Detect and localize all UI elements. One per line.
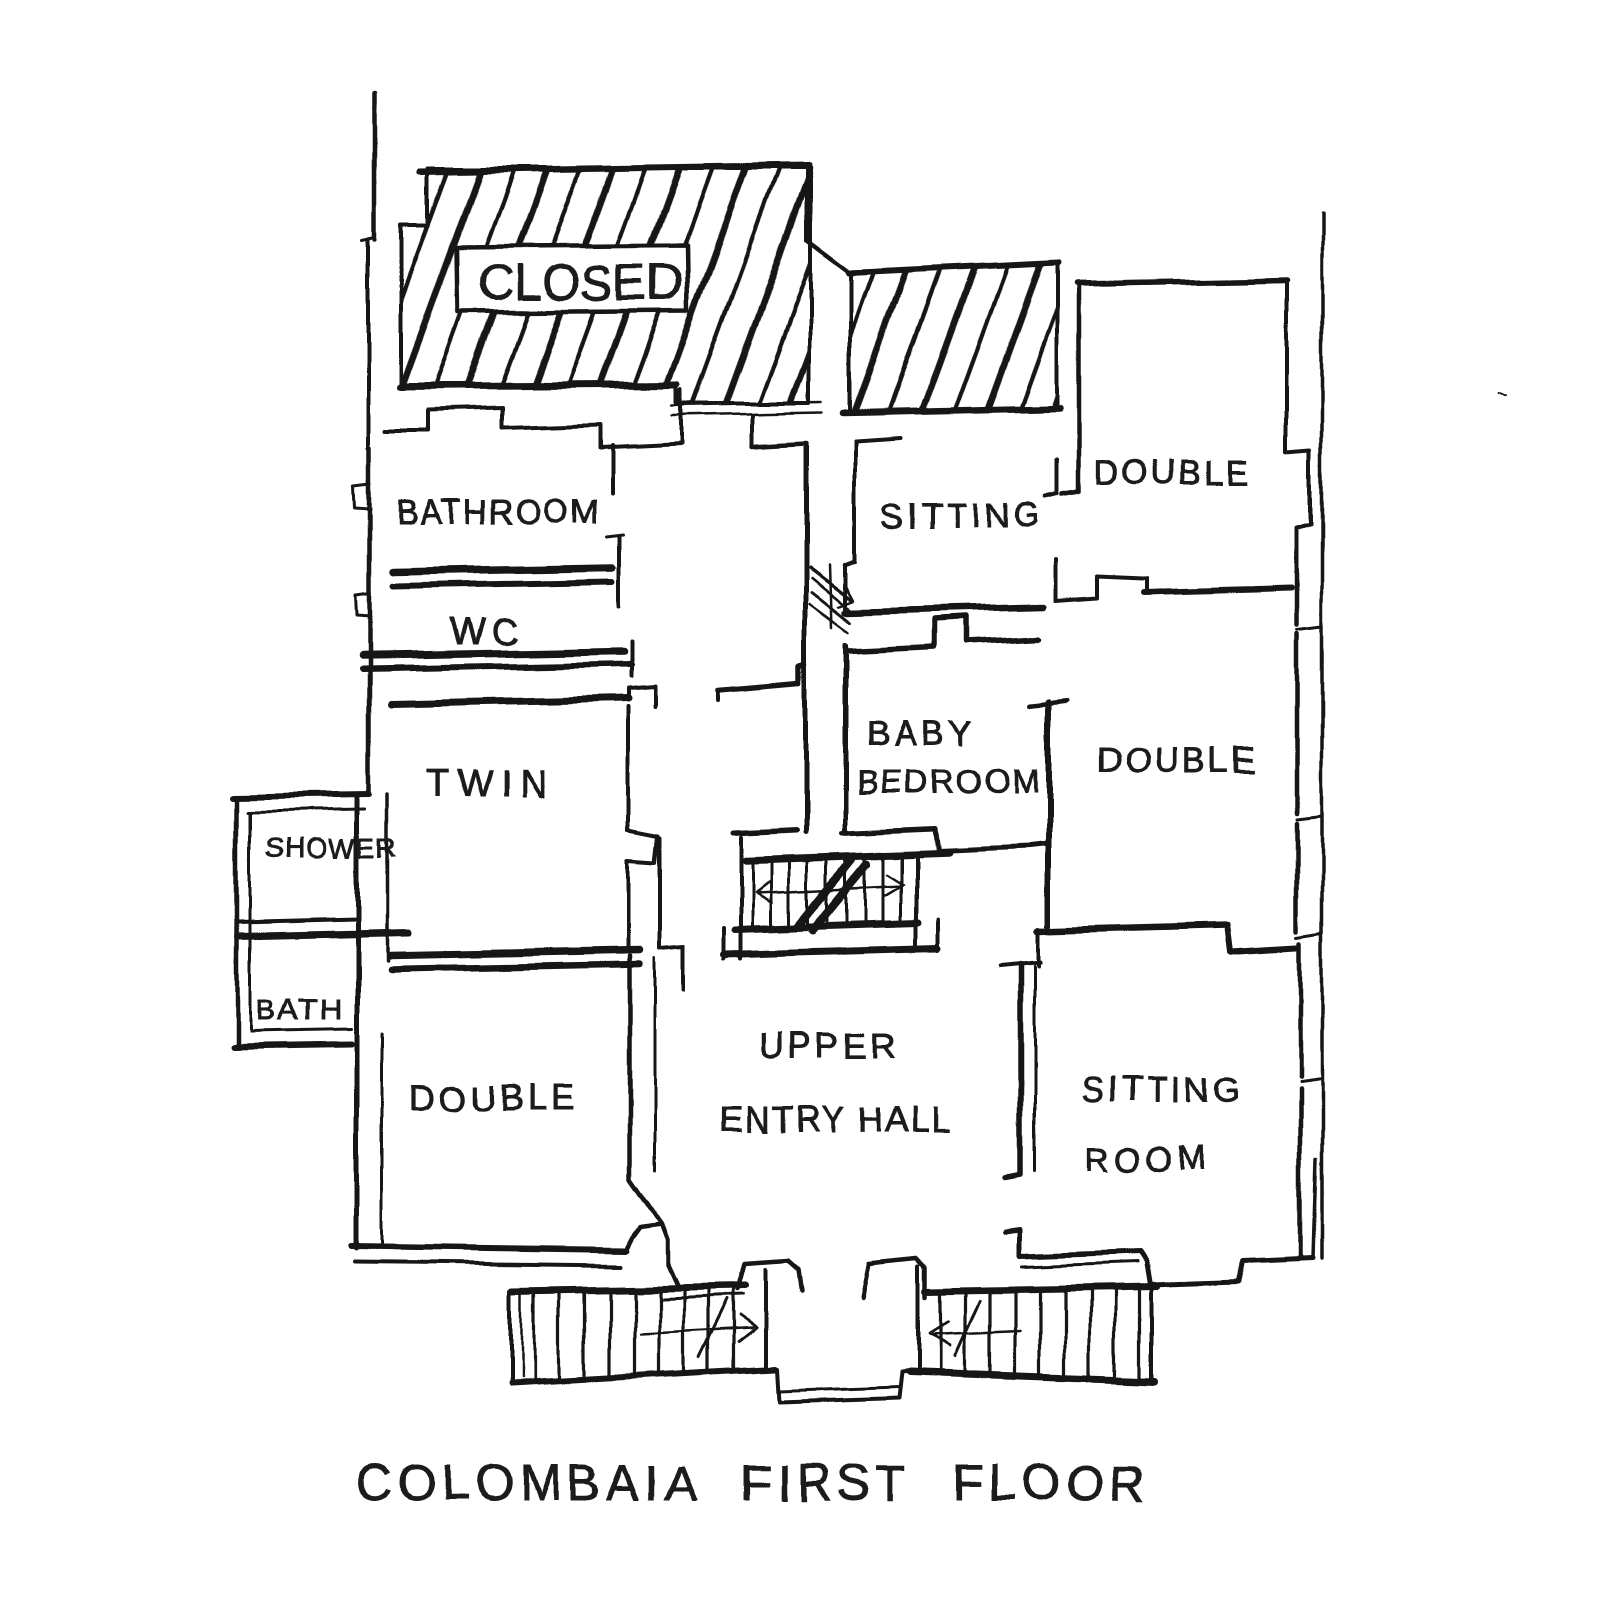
svg-text:SITTING: SITTING — [881, 497, 1043, 535]
svg-text:BABY: BABY — [865, 714, 978, 753]
svg-text:DOUBLE: DOUBLE — [409, 1079, 577, 1118]
svg-text:BATH: BATH — [256, 993, 344, 1028]
svg-text:UPPER: UPPER — [758, 1027, 899, 1066]
svg-text:TWIN: TWIN — [426, 763, 555, 805]
svg-text:BEDROOM: BEDROOM — [856, 764, 1041, 801]
svg-text:COLOMBAIA FIRST FLOOR: COLOMBAIA FIRST FLOOR — [356, 1455, 1152, 1511]
svg-text:WC: WC — [452, 611, 524, 652]
svg-text:CLOSED: CLOSED — [478, 255, 684, 311]
svg-text:DOUBLE: DOUBLE — [1096, 741, 1258, 780]
svg-text:SITTING: SITTING — [1082, 1071, 1244, 1109]
svg-text:ROOM: ROOM — [1085, 1141, 1211, 1179]
svg-text:SHOWER: SHOWER — [265, 833, 397, 864]
svg-text:DOUBLE: DOUBLE — [1094, 454, 1252, 492]
svg-text:BATHROOM: BATHROOM — [396, 493, 600, 530]
svg-text:ENTRY HALL: ENTRY HALL — [719, 1102, 954, 1141]
